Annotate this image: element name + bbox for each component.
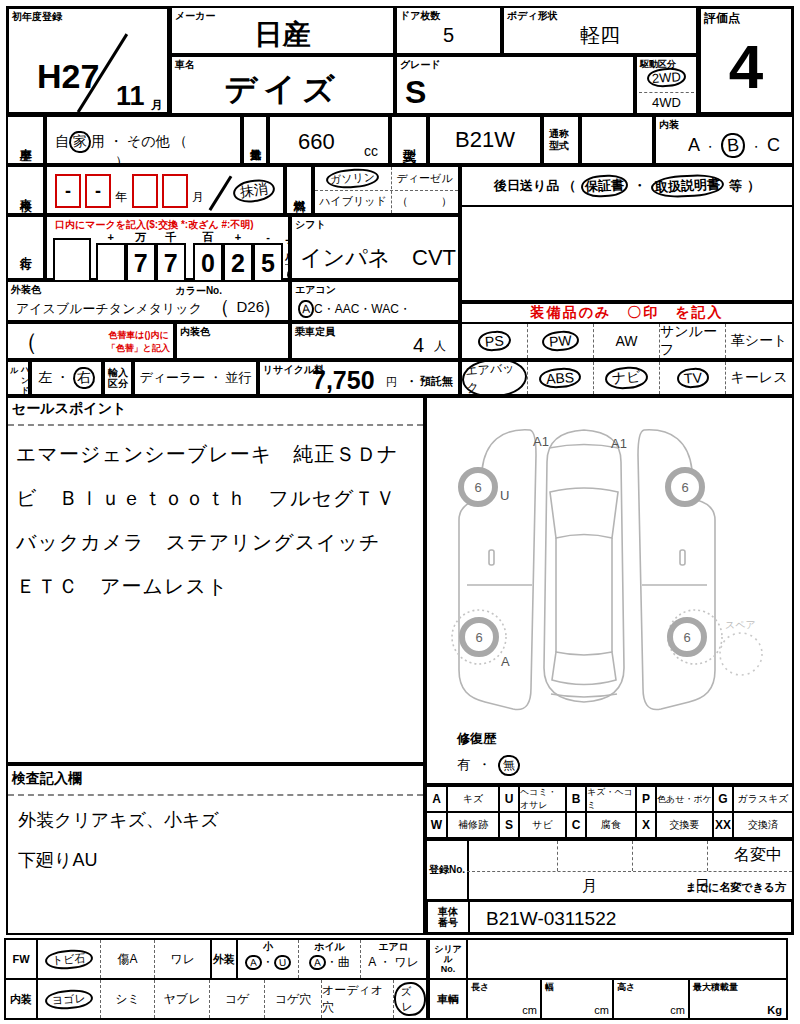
odo-d5: 5	[253, 243, 283, 283]
sales-point-label: セールスポイント	[12, 400, 126, 418]
later-delivery-cell: 後日送り品 （ 保証書 ・ 取扱説明書 等 ）	[460, 165, 794, 207]
exterior-small: 小 A・U	[238, 940, 299, 978]
shaken-label: 車検	[6, 165, 45, 215]
fw-label: FW	[4, 938, 38, 980]
common-model-label: 通称型式	[549, 128, 573, 152]
capacity-value: 4	[413, 334, 424, 357]
registration-section: 登録No. 名変中 月 日 までに名変できる方	[425, 839, 794, 901]
exterior-color-label: 外装色	[11, 283, 41, 297]
width-cell: 幅 cm	[542, 980, 614, 1018]
history-p1: 自	[55, 133, 69, 149]
aircon-label: エアコン	[295, 283, 336, 297]
capacity-cell: 乗車定員 4 人	[290, 322, 460, 360]
max-load-cell: 最大積載量 Kg	[690, 980, 786, 1018]
handle-right-circled: 右	[72, 366, 95, 389]
fuel-other: （ ）	[391, 189, 458, 213]
fuel-label: 燃料	[285, 165, 313, 215]
int-shimi: シミ	[101, 980, 155, 1018]
tire-depth-fl: 6	[474, 480, 481, 495]
common-model-value-cell	[580, 115, 654, 165]
capacity-label: 乗車定員	[295, 325, 335, 339]
interior-color-label: 内装色	[180, 325, 210, 339]
length-cell: 長さ cm	[468, 980, 542, 1018]
equip-leather: 革シート	[726, 324, 792, 358]
displacement-label: 排気量	[242, 115, 268, 165]
odo-box-empty	[53, 238, 91, 283]
fw-ware: ワレ	[155, 940, 210, 978]
fw-kizu-a: 傷A	[101, 940, 155, 978]
handle-cell: 左 ・ 右	[30, 360, 103, 396]
car-name-value: デイズ	[172, 67, 393, 113]
import-cell: ディーラー ・ 並行	[133, 360, 258, 396]
interior-row-label: 内装	[4, 978, 38, 1020]
interior-circle-b: B	[720, 132, 746, 159]
shaken-box1: -	[55, 174, 81, 208]
name-change-status: 名変中	[734, 845, 782, 866]
equip-aw: AW	[594, 324, 660, 358]
shaken-box4	[162, 174, 188, 208]
manual-circled: 取扱説明書	[650, 173, 724, 199]
chassis-number: B21W-0311522	[486, 908, 616, 930]
exterior-color-cell: 外装色 アイスブルーチタンメタリック カラーNo. （ D26 ）	[6, 280, 290, 322]
vehicle-label: 車輌	[430, 980, 468, 1018]
grade-label: グレード	[400, 58, 441, 72]
serial-row: シリアルNo.	[428, 938, 788, 980]
recycle-cell: リサイクル料 7,750 円 ・ 預託無	[258, 360, 460, 396]
tire-depth-rr: 6	[683, 630, 690, 645]
first-reg-month: 11	[116, 81, 145, 112]
odo-d2: 7	[156, 243, 186, 283]
equip-sunroof: サンルーフ	[660, 324, 726, 358]
maker-cell: メーカー 日産	[170, 6, 395, 55]
odo-d3: 0	[193, 243, 223, 283]
displacement-value: 660	[298, 129, 335, 155]
shift-label: シフト	[295, 218, 326, 232]
tire-marks: 6 6 6 6	[461, 470, 704, 654]
shaken-slash	[209, 175, 232, 210]
doors-cell: ドア枚数 5	[395, 6, 502, 55]
exterior-label: 外装	[210, 940, 238, 978]
fuel-cell: ガソリン ディーゼル ハイブリッド （ ）	[313, 165, 460, 215]
car-damage-diagram: 6 6 6 6 A1 A1 U A スペア	[427, 400, 792, 730]
reg-month: 月	[582, 877, 597, 896]
int-yogore: ヨゴレ	[38, 980, 101, 1018]
inspection-line2: 下廻りAU	[18, 848, 97, 872]
chassis-section: 車体番号 B21W-0311522	[425, 899, 794, 935]
chassis-label: 車体番号	[438, 906, 458, 928]
exterior-aero: エアロ A ・ ワレ	[361, 940, 426, 978]
doors-value: 5	[397, 18, 500, 53]
odo-d4: 2	[223, 243, 253, 283]
shift-value: インパネ CVT	[300, 243, 456, 273]
equipment-row1: PS PW AW サンルーフ 革シート	[460, 322, 794, 360]
grade-value: S	[405, 74, 426, 111]
displacement-cell: 660 cc	[268, 115, 390, 165]
model-label: 型式	[390, 115, 428, 165]
exterior-color-value: アイスブルーチタンメタリック	[16, 300, 202, 318]
drive-4wd: 4WD	[637, 93, 696, 111]
capacity-unit: 人	[434, 338, 446, 355]
interior-label: 内装	[659, 118, 679, 132]
exterior-wheel: ホイル A・曲	[299, 940, 361, 978]
serial-label: シリアルNo.	[430, 944, 466, 974]
drive-cell: 駆動区分 2WD 4WD	[635, 55, 698, 115]
body-shape-cell: ボディ形状 軽四	[502, 6, 698, 55]
fw-tobiishi: トビ石	[38, 940, 101, 978]
car-diagram-section: 6 6 6 6 A1 A1 U A スペア 修復歴 有 ・ 無	[425, 396, 794, 785]
odo-d1: 7	[126, 243, 156, 283]
name-change-note: までに名変できる方	[685, 880, 786, 895]
warranty-book-circled: 保証書	[580, 174, 628, 198]
maker-value: 日産	[172, 16, 393, 53]
shift-cell: シフト インパネ CVT	[290, 215, 460, 280]
score-cell: 評価点 4	[698, 6, 794, 115]
handle-label: ハンドル	[6, 360, 30, 396]
month-unit: 月	[151, 97, 163, 114]
common-model-label-cell: 通称型式	[542, 115, 580, 165]
int-yabure: ヤブレ	[155, 980, 210, 1018]
color-change-cell: （ ） 色替車は()内に 「色替」と記入	[6, 322, 175, 360]
shaken-box3	[132, 174, 158, 208]
equipment-row2: エアバック ABS ナビ TV キーレス	[460, 360, 794, 396]
equip-pw: PW	[528, 324, 594, 358]
recycle-fee: 7,750	[312, 366, 375, 395]
height-cell: 高さ cm	[614, 980, 690, 1018]
displacement-unit: cc	[364, 143, 378, 159]
history-circle: 家	[68, 130, 91, 153]
shaken-cancel-circled: 抹消	[232, 177, 277, 205]
first-registration-cell: 初年度登録 H27 11 月	[6, 6, 170, 115]
shaken-cell: - - 年 月 抹消	[45, 165, 285, 215]
sales-point-section: セールスポイント エマージェンシーブレーキ 純正ＳＤナビ Ｂｌｕｅｔｏｏｔｈ フ…	[6, 396, 425, 764]
spare-label: スペア	[725, 619, 756, 630]
recycle-deposit: ・ 預託無	[406, 374, 453, 389]
import-label-cell: 輸入区分	[103, 360, 133, 396]
damage-a1-left: A1	[533, 434, 549, 449]
score-value: 4	[701, 21, 791, 112]
aircon-cell: エアコン AC・AAC・WAC・（ ）	[290, 280, 460, 322]
mileage-label: 走行	[6, 215, 45, 280]
inspection-section: 検査記入欄 外装クリアキズ、小キズ 下廻りAU	[6, 764, 425, 935]
equip-navi: ナビ	[594, 362, 660, 394]
repair-none-circled: 無	[498, 754, 521, 776]
auction-sheet: 初年度登録 H27 11 月 メーカー 日産 車名 デイズ ドア枚数 5 ボディ…	[0, 0, 800, 1024]
first-reg-label: 初年度登録	[12, 10, 62, 24]
repair-history-value: 有 ・ 無	[457, 755, 520, 776]
tire-depth-fr: 6	[681, 480, 688, 495]
car-name-cell: 車名 デイズ	[170, 55, 395, 115]
inspection-line1: 外装クリアキズ、小キズ	[18, 808, 219, 832]
damage-a1-right: A1	[611, 436, 627, 451]
inspection-label: 検査記入欄	[12, 770, 82, 788]
mileage-note: 口内にマークを記入($:交換 *:改ざん #:不明)	[55, 218, 254, 232]
vehicle-size-row: 車輌 長さ cm 幅 cm 高さ cm 最大積載量 Kg	[428, 978, 788, 1020]
aircon-a-circled: A	[297, 299, 314, 318]
fuel-hybrid: ハイブリッド	[315, 189, 391, 213]
mileage-cell: 口内にマークを記入($:交換 *:改ざん #:不明) + 万7 千7 , 百0 …	[45, 215, 290, 280]
equip-abs: ABS	[528, 362, 594, 394]
damage-a-label: A	[501, 654, 510, 669]
body-shape-value: 軽四	[504, 18, 696, 53]
repair-history-label: 修復歴	[457, 730, 496, 748]
int-kogeana: コゲ穴	[265, 980, 322, 1018]
color-no-value: D26	[236, 298, 264, 315]
drive-2wd: 2WD	[637, 68, 696, 87]
tire-depth-rl: 6	[475, 630, 482, 645]
interior-grade-cell: 内装 A ・ B ・ C	[654, 115, 794, 165]
equipment-note: 装備品のみ 〇印 を記入	[460, 302, 794, 322]
int-audio-hole: オーディオ穴	[322, 980, 394, 1018]
damage-u-label: U	[500, 488, 509, 503]
interior-color-cell: 内装色	[175, 322, 290, 360]
fuel-diesel: ディーゼル	[391, 167, 458, 190]
model-value: B21W	[430, 117, 540, 163]
history-cell: 自家用 ・ その他 （ ）	[45, 115, 242, 165]
sales-point-text: エマージェンシーブレーキ 純正ＳＤナビ Ｂｌｕｅｔｏｏｔｈ フルセグＴＶ バック…	[16, 432, 419, 608]
equip-tv: TV	[660, 362, 726, 394]
history-label: 車歴	[6, 115, 45, 165]
model-cell: B21W	[428, 115, 542, 165]
fuel-gasoline-circled: ガソリン	[326, 167, 380, 190]
blank-cell	[460, 205, 794, 302]
int-koge: コゲ	[210, 980, 265, 1018]
registration-label: 登録No.	[429, 863, 465, 877]
odo-d0	[96, 243, 126, 283]
equip-airbag: エアバック	[462, 362, 528, 394]
grade-cell: グレード S	[395, 55, 635, 115]
int-zure: ズレ	[394, 980, 426, 1018]
equip-keyless: キーレス	[726, 362, 792, 394]
equip-ps: PS	[462, 324, 528, 358]
shaken-box2: -	[85, 174, 111, 208]
